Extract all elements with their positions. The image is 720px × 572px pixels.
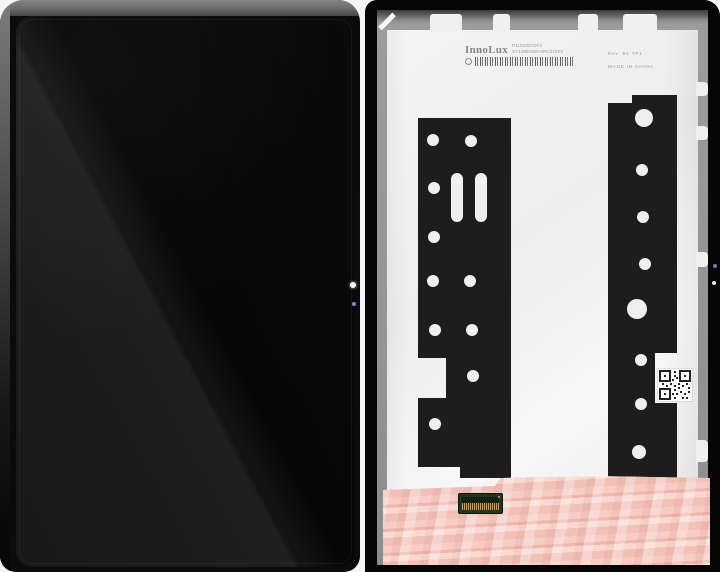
- screw-hole: [639, 258, 651, 270]
- screw-hole: [635, 398, 647, 410]
- mounting-tab: [578, 14, 598, 32]
- edge-sensor-dot: [713, 264, 717, 268]
- brand-text: InnoLux: [465, 44, 508, 56]
- screw-hole: [636, 164, 648, 176]
- screw-hole: [632, 445, 646, 459]
- qr-code-icon: [658, 369, 692, 401]
- screw-hole: [466, 324, 478, 336]
- mounting-tab: [696, 82, 708, 96]
- screw-hole: [428, 182, 440, 194]
- mounting-tab: [623, 14, 657, 32]
- adhesive-strip-right: [608, 95, 677, 478]
- slot-cutout: [451, 173, 463, 222]
- adhesive-strip-left: [418, 118, 511, 478]
- barcode-icon: [475, 57, 573, 66]
- connector-pins: [462, 503, 499, 510]
- mounting-tab: [696, 126, 708, 140]
- screw-hole: [427, 275, 439, 287]
- front-camera-icon: [350, 282, 356, 288]
- light-sensor-icon: [352, 302, 356, 306]
- screw-hole: [467, 370, 479, 382]
- qr-code-sticker: [658, 369, 692, 401]
- screw-hole: [429, 324, 441, 336]
- metal-frame-left-edge: [0, 0, 10, 572]
- screw-hole: [637, 211, 649, 223]
- edge-camera-dot: [712, 281, 716, 285]
- screw-hole: [429, 418, 441, 430]
- origin-text: MADE IN CHINA: [608, 65, 654, 70]
- screw-hole: [465, 135, 477, 147]
- screw-hole: [635, 354, 647, 366]
- display-glass: [16, 16, 355, 567]
- connector-pin1-dot: [498, 496, 500, 498]
- serial-number-text: SY1068XW0-0RC21023: [512, 50, 563, 55]
- fpc-connector: [458, 493, 503, 514]
- revision-text: Rev. B1 TP1: [608, 52, 654, 57]
- metal-frame-top-edge: [0, 0, 360, 16]
- manufacturer-label: InnoLux P110ZZD-DF2 SY1068XW0-0RC21023: [465, 44, 625, 66]
- model-number-text: P110ZZD-DF2: [512, 44, 563, 49]
- slot-cutout: [475, 173, 487, 222]
- screw-hole: [627, 299, 647, 319]
- corner-chamfer-highlight: [378, 13, 396, 31]
- mounting-tab: [430, 14, 462, 32]
- front-view-assembly: [0, 0, 360, 572]
- screw-hole: [428, 231, 440, 243]
- mounting-tab: [696, 252, 708, 267]
- mounting-tab: [493, 14, 510, 32]
- back-view-assembly: InnoLux P110ZZD-DF2 SY1068XW0-0RC21023 R…: [365, 0, 720, 572]
- label-revision-block: Rev. B1 TP1 MADE IN CHINA: [608, 52, 666, 71]
- product-photo-tablet-lcd-assembly: InnoLux P110ZZD-DF2 SY1068XW0-0RC21023 R…: [0, 0, 720, 572]
- mounting-tab: [696, 440, 708, 462]
- cert-mark-icon: [465, 58, 472, 65]
- display-inner-bezel: [19, 19, 352, 564]
- screw-hole: [635, 109, 653, 127]
- screw-hole: [464, 275, 476, 287]
- screw-hole: [427, 134, 439, 146]
